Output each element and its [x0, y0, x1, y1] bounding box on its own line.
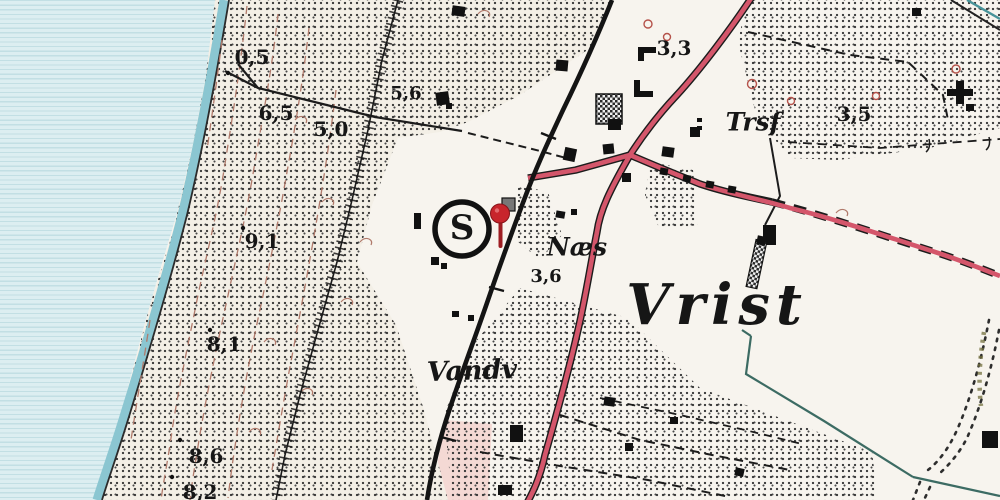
- coastline: [97, 0, 229, 500]
- spot-height-label-8-2: 8,2: [183, 482, 218, 500]
- map-canvas[interactable]: 0,5 6,5 5,0 5,6 9,1 8,1 8,6 8,2 3,3 3,5 …: [0, 0, 1000, 500]
- ditch-lines: [742, 0, 1000, 496]
- map-artwork: [0, 0, 1000, 500]
- spot-height-label-6-5: 6,5: [259, 103, 294, 123]
- hedge-olive: [980, 332, 984, 406]
- tree-ring-symbols: [644, 20, 960, 105]
- place-label-vrist: Vrist: [626, 277, 808, 333]
- spot-height-label-9-1: 9,1: [245, 231, 280, 251]
- spot-height-label-5-0: 5,0: [314, 119, 349, 139]
- dune-squiggle-marks: [249, 10, 848, 435]
- dune-contour-lines: [131, 6, 336, 500]
- place-label-trsf: Trsf: [726, 110, 781, 135]
- dotted-tree-path: [913, 320, 999, 500]
- spot-height-label-3-6: 3,6: [530, 268, 561, 286]
- buildings: [414, 5, 998, 495]
- spot-height-label-3-3: 3,3: [657, 38, 692, 58]
- place-label-naes: Næs: [547, 235, 607, 260]
- spot-height-label-0-5: 0,5: [235, 47, 270, 67]
- spot-height-label-8-6: 8,6: [189, 446, 224, 466]
- map-marker-pin[interactable]: [491, 204, 510, 246]
- place-label-vandv: Vandv: [426, 356, 517, 386]
- spot-height-dots: [170, 71, 245, 479]
- station-symbol-letter: S: [450, 211, 475, 245]
- spot-height-label-3-5: 3,5: [837, 104, 872, 124]
- spot-height-label-5-6: 5,6: [390, 85, 421, 103]
- embankment-hatched-line: [276, 0, 398, 500]
- spot-height-label-8-1: 8,1: [207, 334, 242, 354]
